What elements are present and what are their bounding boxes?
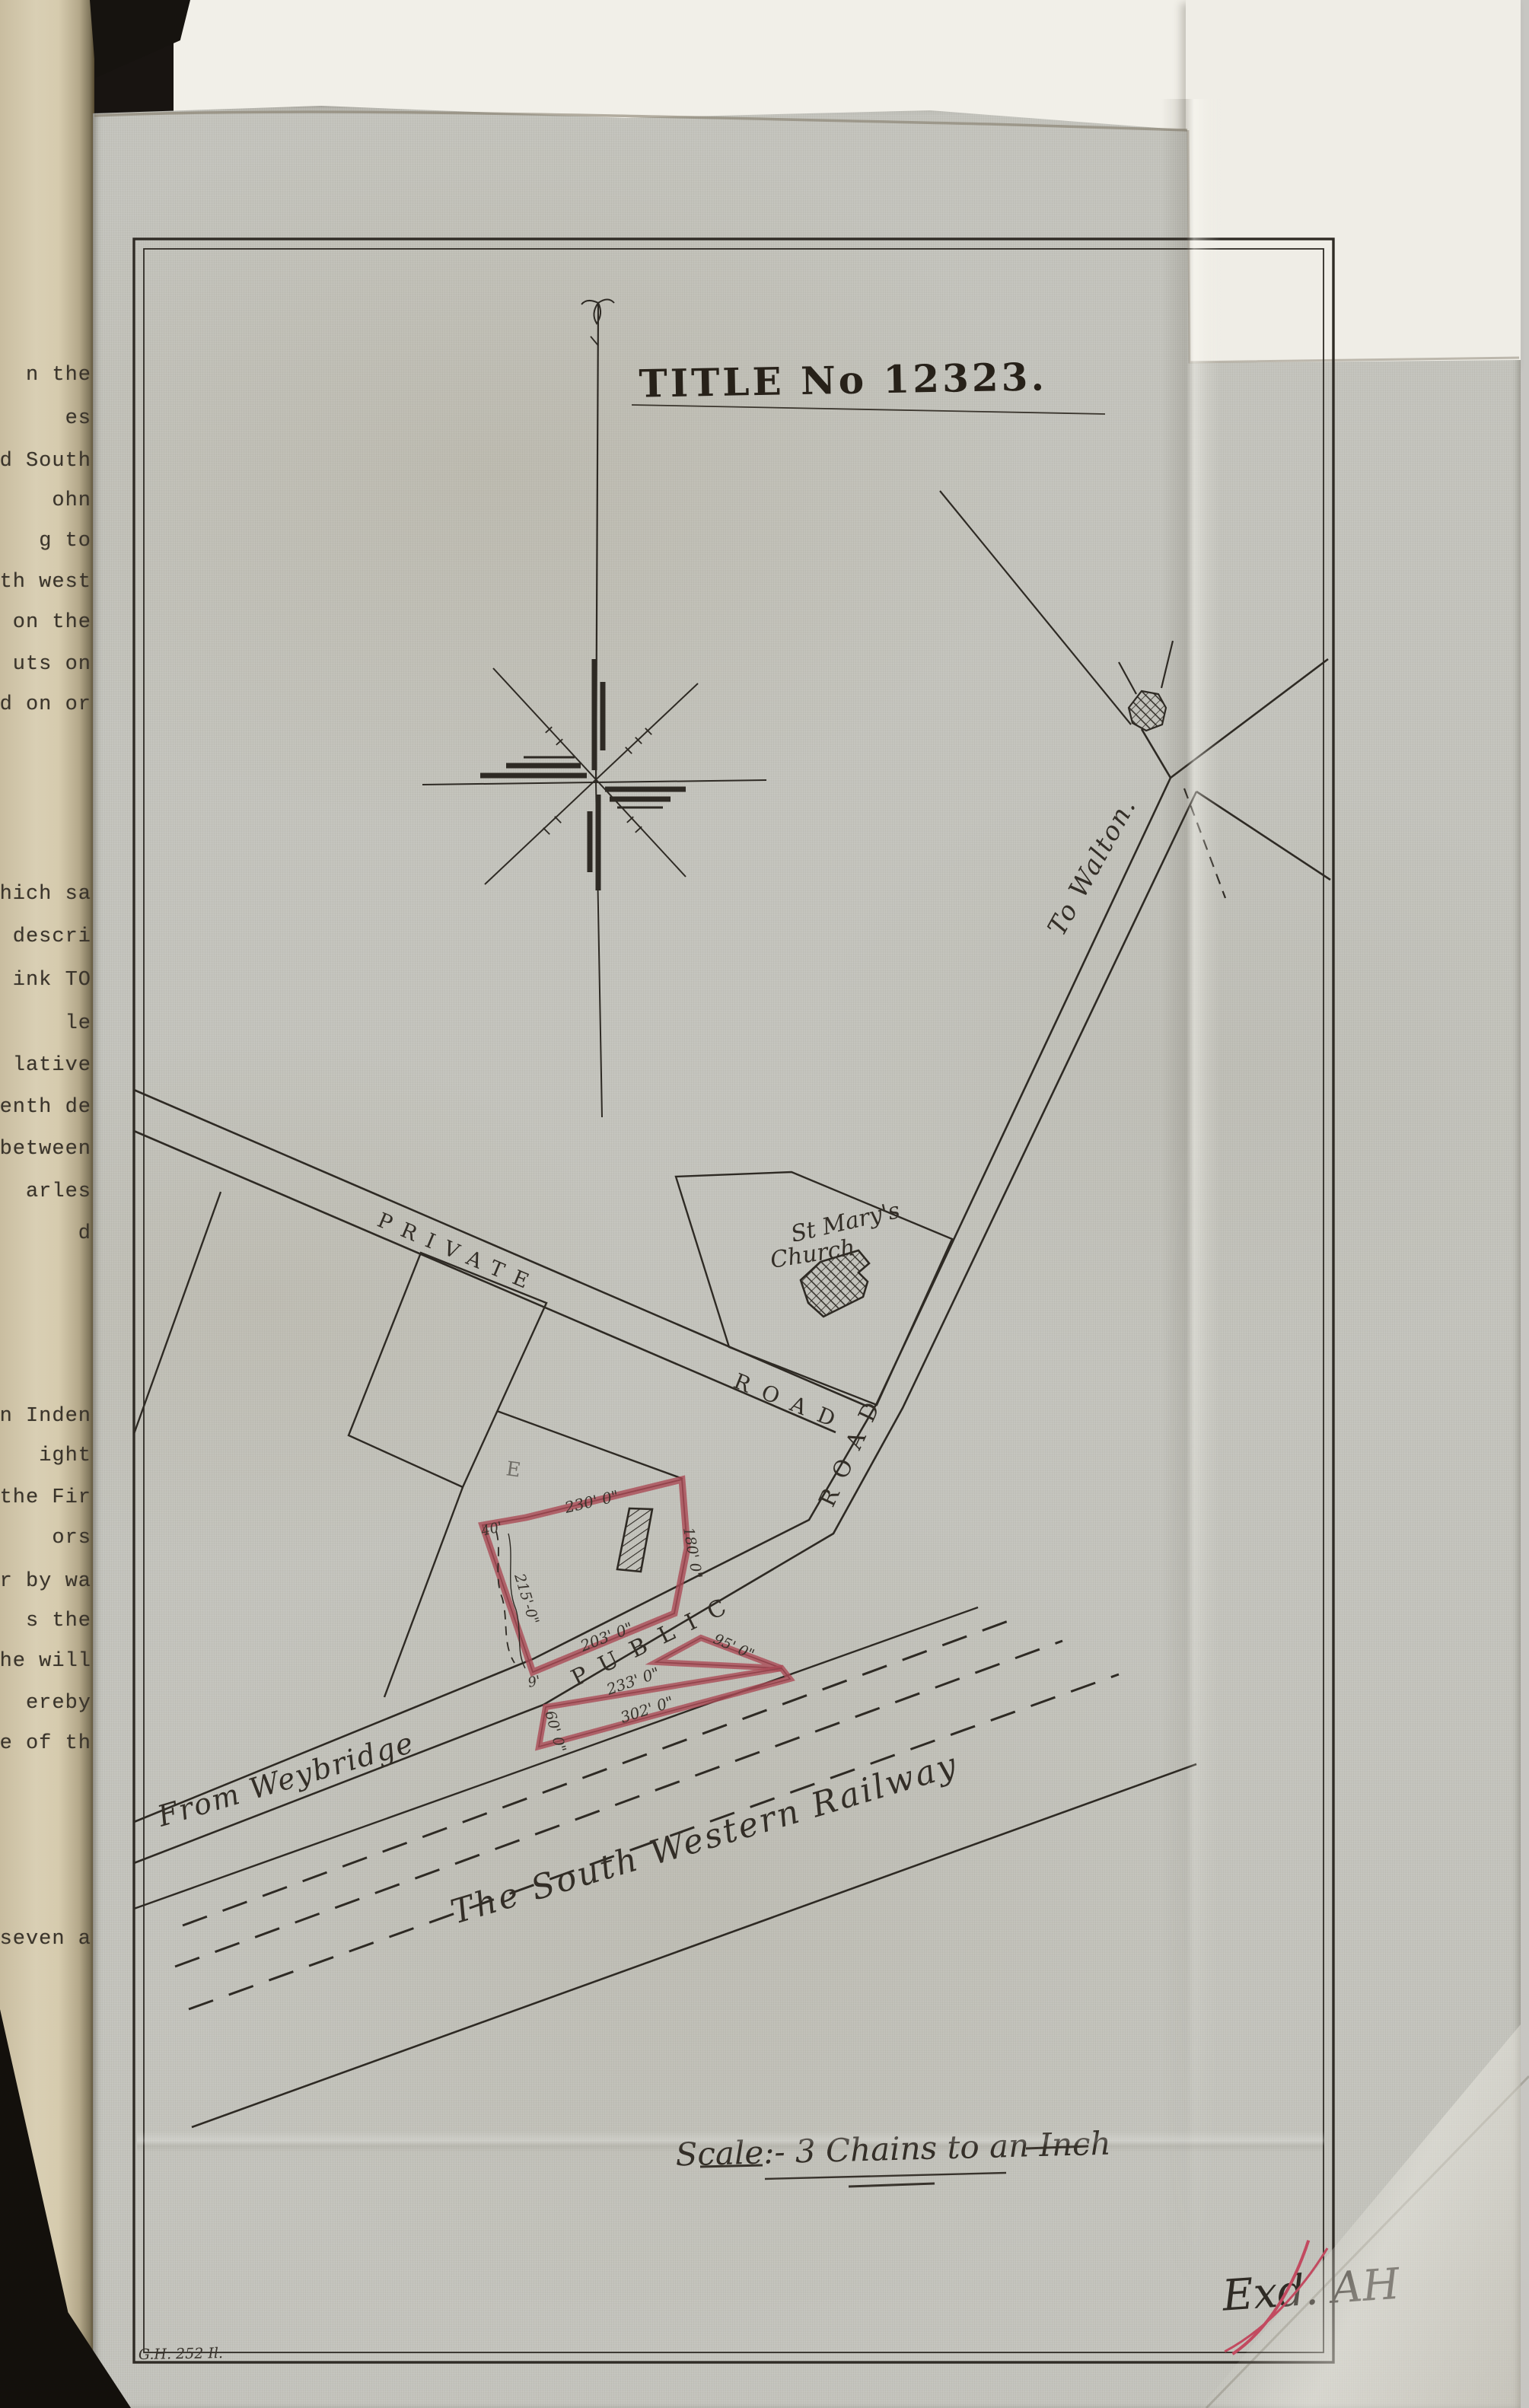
boundary-to-junction	[940, 491, 1131, 725]
page-title: TITLE No 12323.	[639, 354, 1047, 406]
label-private-road-2: ROAD	[730, 1368, 852, 1437]
title-underline	[632, 405, 1105, 414]
measurement: 95' 0"	[711, 1630, 757, 1663]
far-west-boundary	[134, 1192, 221, 1434]
west-branch-boundary	[497, 1411, 683, 1479]
parcel-building	[617, 1508, 652, 1572]
junction-building	[1129, 691, 1166, 731]
vertical-fold-crease	[1161, 99, 1221, 2408]
measurement: 302' 0"	[618, 1693, 676, 1727]
road-west-edge	[134, 729, 1171, 1822]
measurement: 9'	[527, 1673, 542, 1691]
horizontal-fold-crease	[137, 2131, 1324, 2152]
title-plan-drawing: TITLE No 12323.	[0, 0, 1529, 2408]
label-from-weybridge: From Weybridge	[153, 1725, 418, 1833]
compass-rose	[422, 300, 766, 1118]
measurement: 230' 0"	[562, 1486, 620, 1517]
map-labels: St Mary's Church To Walton. PRIVATE ROAD…	[153, 792, 1142, 1932]
label-to-walton: To Walton.	[1042, 792, 1143, 941]
label-private-road: PRIVATE	[374, 1209, 543, 1298]
scanned-deed-plan-page: n the es d South ohn g to th west on the…	[0, 0, 1529, 2408]
pencil-mark: E	[505, 1457, 522, 1482]
railway-south-boundary	[192, 1764, 1196, 2127]
plan-border	[134, 239, 1333, 2362]
west-lower-boundary	[384, 1487, 463, 1697]
private-road-south-edge	[134, 1131, 836, 1432]
plate-reference: G.H. 252 Il.	[139, 2345, 223, 2363]
